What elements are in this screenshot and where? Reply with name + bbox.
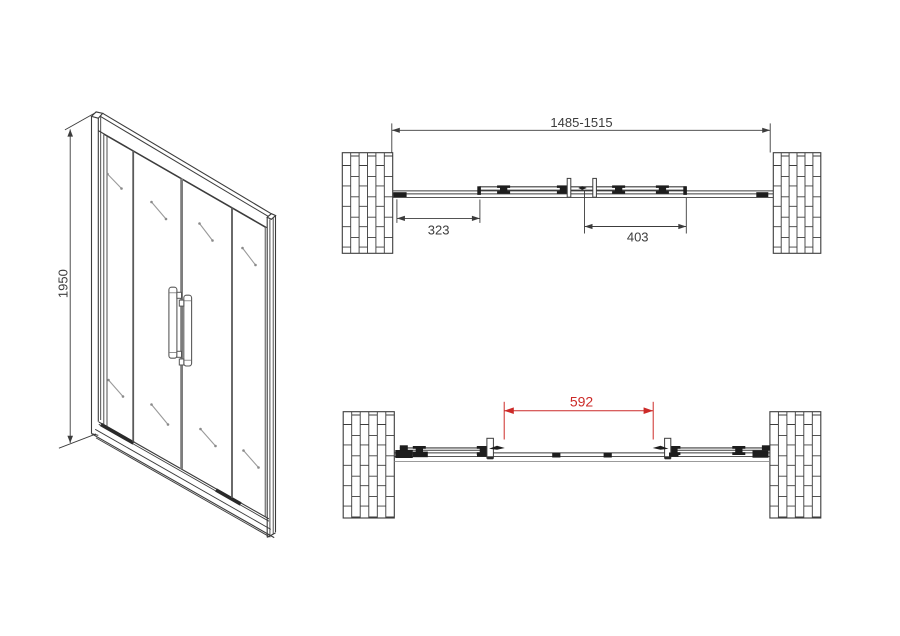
- svg-text:1485-1515: 1485-1515: [550, 115, 612, 130]
- svg-text:323: 323: [428, 223, 450, 238]
- svg-text:403: 403: [627, 229, 649, 244]
- svg-text:1950: 1950: [56, 269, 71, 298]
- svg-text:592: 592: [570, 393, 594, 409]
